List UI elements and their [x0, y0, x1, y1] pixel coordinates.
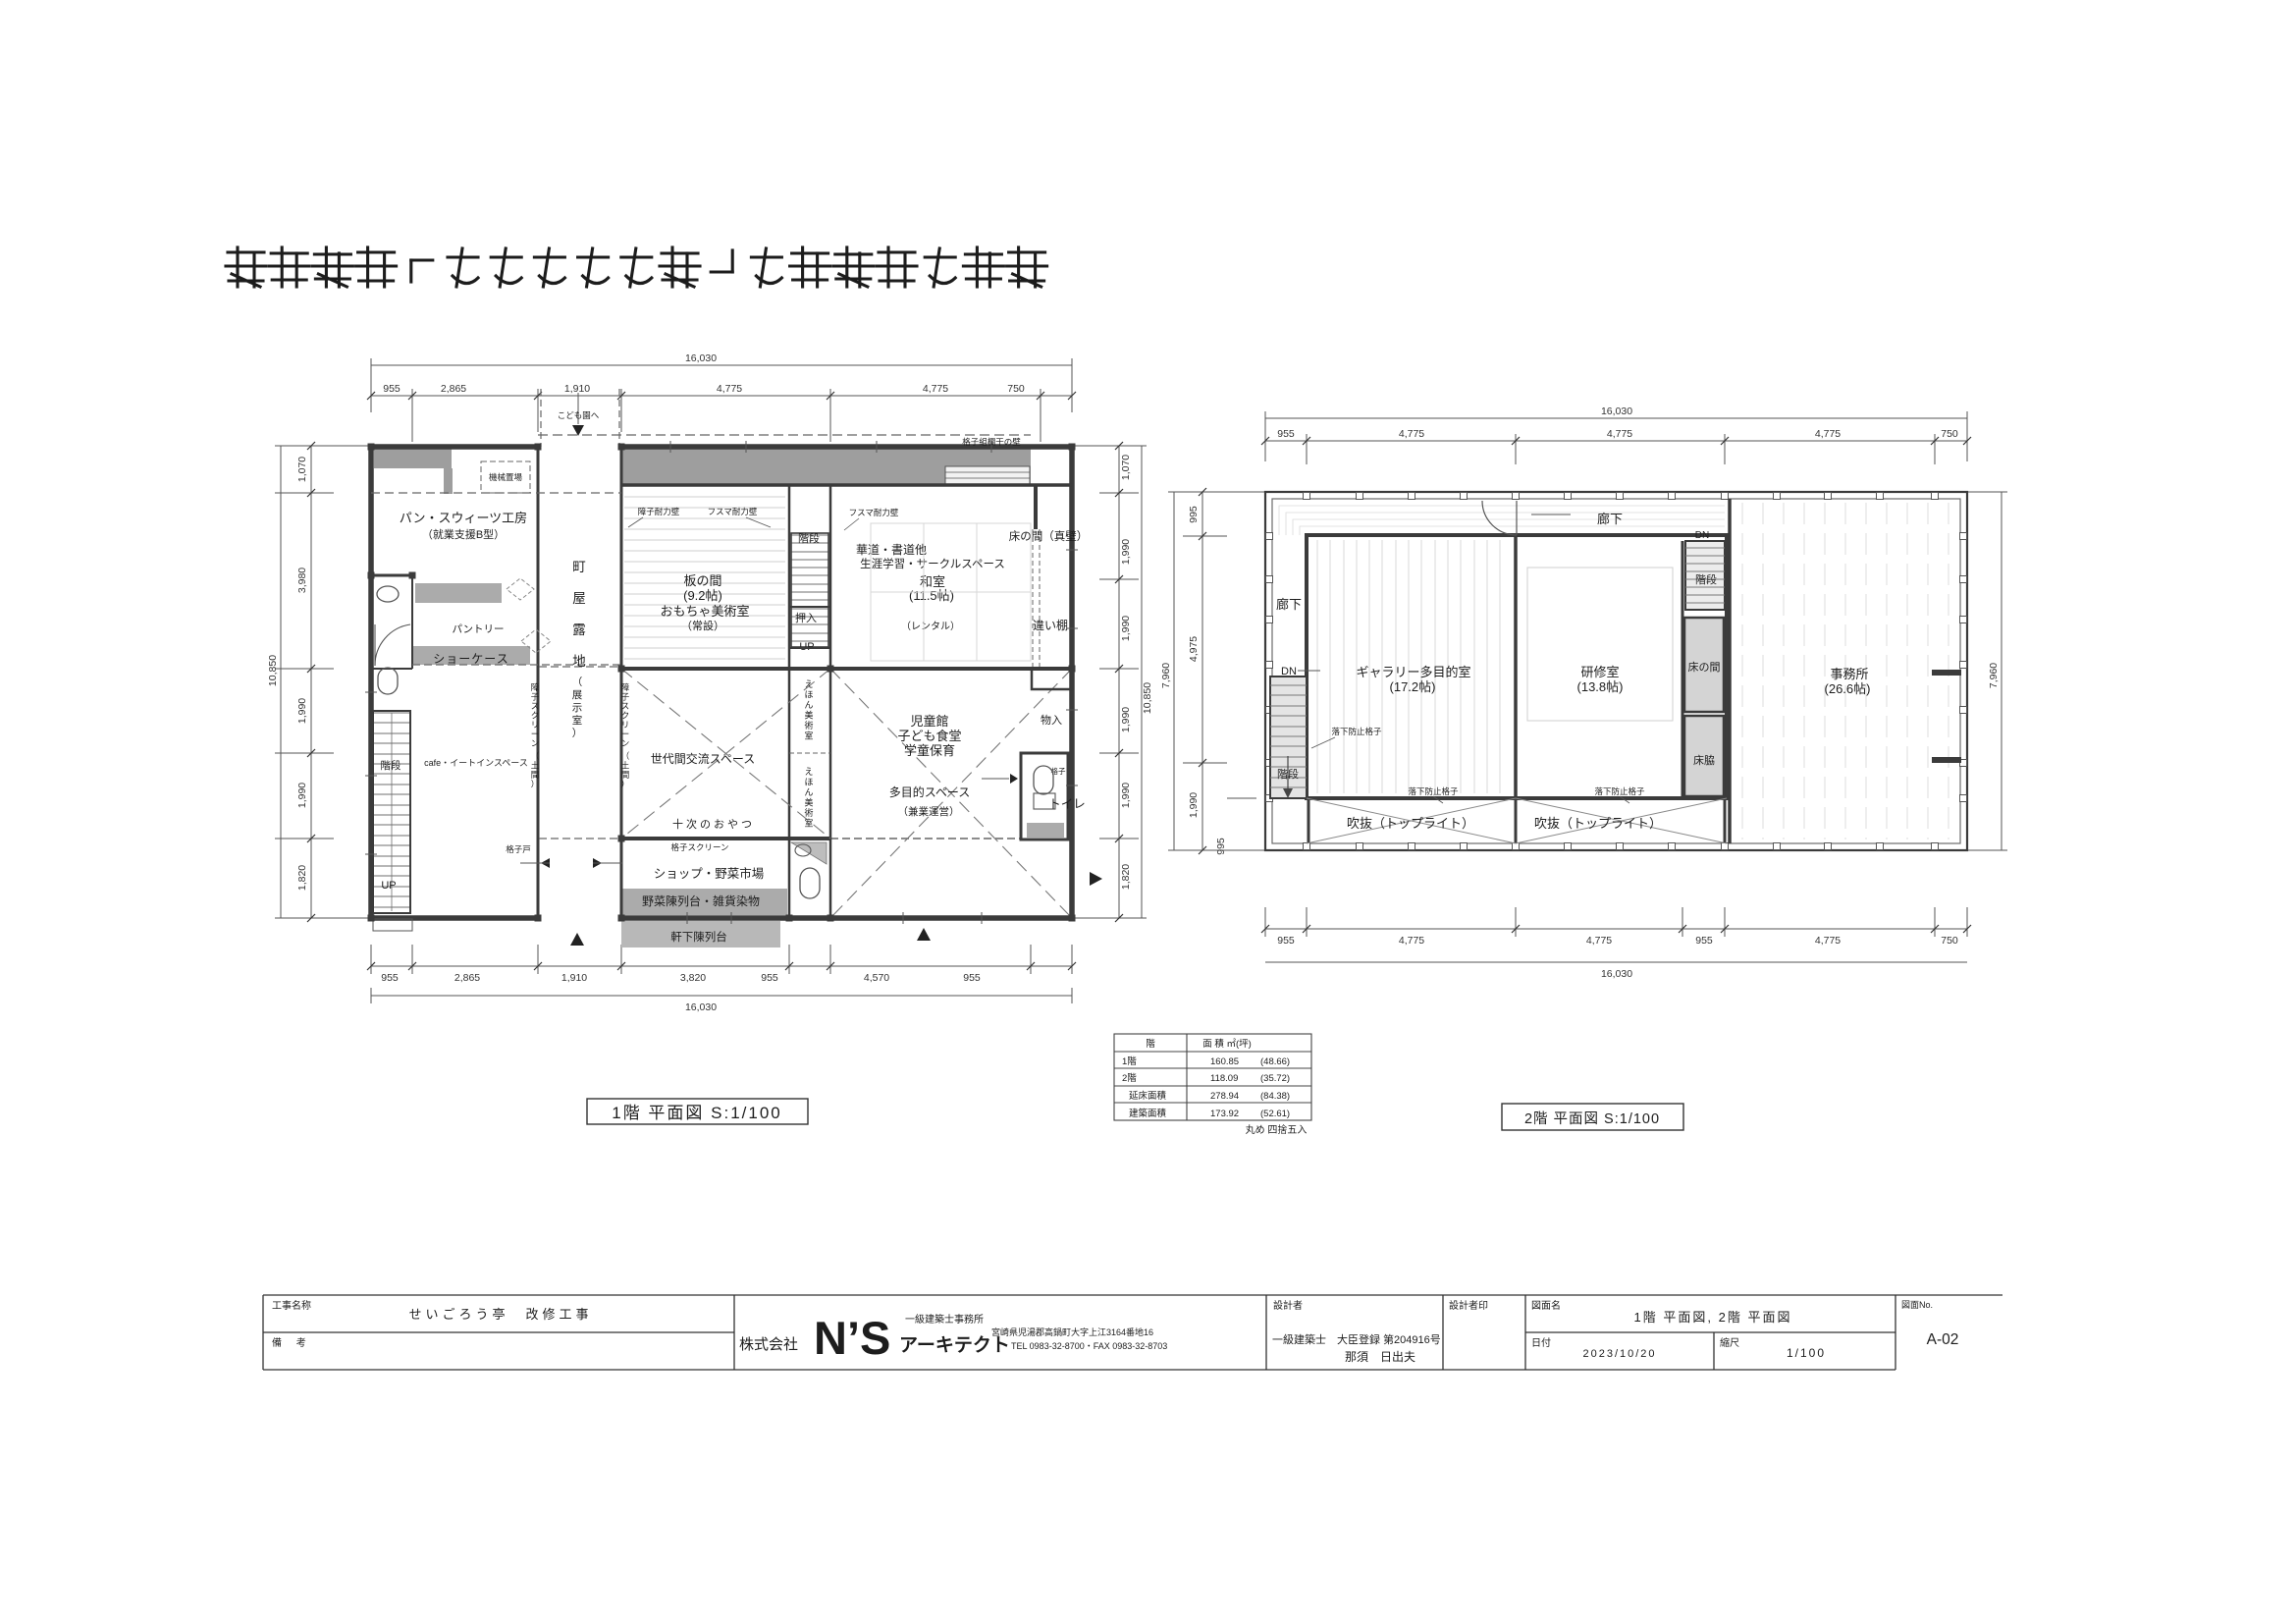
svg-text:UP: UP [381, 880, 396, 892]
svg-text:（常設）: （常設） [681, 619, 724, 632]
svg-text:1,070: 1,070 [1120, 455, 1132, 480]
svg-text:床脇: 床脇 [1693, 753, 1715, 767]
svg-text:日付: 日付 [1531, 1336, 1551, 1349]
svg-text:10,850: 10,850 [267, 655, 279, 686]
svg-text:面 積 ㎡(坪): 面 積 ㎡(坪) [1202, 1038, 1252, 1050]
svg-text:(35.72): (35.72) [1260, 1073, 1290, 1084]
svg-text:2,865: 2,865 [454, 972, 480, 984]
svg-text:物入: 物入 [1041, 713, 1062, 727]
svg-text:縮尺: 縮尺 [1720, 1336, 1739, 1349]
svg-text:1,990: 1,990 [296, 783, 308, 808]
svg-text:那須 日出夫: 那須 日出夫 [1345, 1350, 1415, 1364]
svg-text:1,990: 1,990 [1120, 539, 1132, 565]
svg-text:4,775: 4,775 [1399, 428, 1424, 440]
svg-text:3,980: 3,980 [296, 568, 308, 593]
svg-text:16,030: 16,030 [685, 1001, 717, 1013]
svg-text:1,990: 1,990 [1188, 792, 1200, 818]
svg-text:TEL 0983-32-8700・FAX 0983-32-8: TEL 0983-32-8700・FAX 0983-32-8703 [1011, 1341, 1167, 1351]
svg-text:機械置場: 機械置場 [489, 472, 523, 482]
svg-text:宮崎県児湯郡高鍋町大字上江3164番地16: 宮崎県児湯郡高鍋町大字上江3164番地16 [991, 1326, 1153, 1337]
svg-text:華道・書道他: 華道・書道他 [856, 543, 927, 557]
svg-text:学童保育: 学童保育 [904, 743, 955, 758]
svg-text:1,910: 1,910 [561, 972, 587, 984]
svg-text:(13.8帖): (13.8帖) [1577, 679, 1624, 694]
svg-text:4,775: 4,775 [1399, 935, 1424, 947]
svg-text:図面名: 図面名 [1531, 1299, 1561, 1312]
svg-text:ギャラリー多目的室: ギャラリー多目的室 [1356, 665, 1470, 679]
svg-text:障子スクリーン: 障子スクリーン [621, 682, 630, 748]
svg-text:備 考: 備 考 [272, 1336, 312, 1349]
svg-text:2,865: 2,865 [441, 383, 466, 395]
svg-text:一級建築士事務所: 一級建築士事務所 [905, 1313, 984, 1326]
svg-text:(17.2帖): (17.2帖) [1390, 679, 1436, 694]
svg-text:延床面積: 延床面積 [1129, 1090, 1167, 1102]
svg-text:118.09: 118.09 [1210, 1073, 1238, 1084]
svg-text:N’S: N’S [814, 1312, 890, 1364]
svg-text:フスマ耐力壁: フスマ耐力壁 [849, 508, 899, 517]
svg-text:違い棚: 違い棚 [1033, 618, 1068, 632]
svg-text:野菜陳列台・雑貨染物: 野菜陳列台・雑貨染物 [642, 893, 760, 908]
svg-text:4,775: 4,775 [923, 383, 948, 395]
svg-text:1,070: 1,070 [296, 457, 308, 482]
svg-text:2階: 2階 [1122, 1073, 1137, 1084]
svg-text:7,960: 7,960 [1160, 663, 1172, 688]
svg-text:1,990: 1,990 [296, 698, 308, 724]
svg-text:えほん美術室: えほん美術室 [804, 679, 813, 741]
svg-text:1階 平面図, 2階 平面図: 1階 平面図, 2階 平面図 [1634, 1310, 1792, 1325]
svg-text:フスマ耐力壁: フスマ耐力壁 [708, 507, 758, 516]
svg-text:子ども食堂: 子ども食堂 [897, 729, 961, 743]
svg-text:（レンタル）: （レンタル） [901, 621, 960, 632]
svg-text:えほん美術室: えほん美術室 [804, 767, 813, 829]
svg-text:1階 平面図 S:1/100: 1階 平面図 S:1/100 [612, 1104, 782, 1122]
svg-text:10,850: 10,850 [1142, 682, 1153, 714]
svg-text:955: 955 [1277, 935, 1295, 947]
svg-text:1,910: 1,910 [564, 383, 590, 395]
svg-text:1,820: 1,820 [296, 865, 308, 891]
svg-text:板の間: 板の間 [683, 573, 721, 588]
svg-text:4,775: 4,775 [717, 383, 742, 395]
svg-text:吹抜（トップライト）: 吹抜（トップライト） [1347, 816, 1474, 831]
svg-text:（就業支援B型）: （就業支援B型） [422, 527, 505, 541]
svg-text:障子スクリーン: 障子スクリーン [531, 682, 540, 748]
svg-text:(26.6帖): (26.6帖) [1825, 681, 1871, 696]
svg-text:278.94: 278.94 [1210, 1091, 1239, 1102]
svg-text:(52.61): (52.61) [1260, 1109, 1290, 1119]
svg-text:落下防止格子: 落下防止格子 [1331, 727, 1382, 736]
svg-text:床の間: 床の間 [1688, 660, 1721, 674]
svg-text:（展示室）: （展示室） [572, 677, 583, 739]
svg-text:750: 750 [1007, 383, 1025, 395]
svg-text:173.92: 173.92 [1210, 1109, 1239, 1119]
svg-text:955: 955 [381, 972, 399, 984]
svg-text:格子スクリーン: 格子スクリーン [670, 842, 728, 852]
svg-text:設計者印: 設計者印 [1449, 1299, 1488, 1312]
svg-text:4,775: 4,775 [1586, 935, 1612, 947]
svg-text:障子耐力壁: 障子耐力壁 [638, 507, 680, 516]
svg-text:工事名称: 工事名称 [272, 1299, 311, 1312]
svg-text:1,820: 1,820 [1120, 864, 1132, 890]
svg-text:研修室: 研修室 [1580, 665, 1619, 679]
svg-text:建築面積: 建築面積 [1129, 1108, 1167, 1119]
svg-text:落下防止格子: 落下防止格子 [1594, 786, 1645, 796]
svg-text:995: 995 [1215, 838, 1227, 855]
svg-text:DN: DN [1695, 530, 1709, 541]
svg-text:955: 955 [383, 383, 400, 395]
svg-text:せいごろう亭 改修工事: せいごろう亭 改修工事 [408, 1307, 592, 1322]
svg-text:階段: 階段 [1695, 572, 1717, 586]
svg-text:160.85: 160.85 [1210, 1056, 1239, 1067]
svg-text:1,990: 1,990 [1120, 616, 1132, 641]
svg-text:DN: DN [1281, 666, 1297, 677]
svg-text:格子戸: 格子戸 [506, 844, 531, 854]
svg-text:750: 750 [1941, 428, 1958, 440]
svg-text:1,990: 1,990 [1120, 783, 1132, 808]
svg-text:16,030: 16,030 [1601, 968, 1632, 980]
svg-text:世代間交流スペース: 世代間交流スペース [651, 751, 756, 766]
svg-text:4,775: 4,775 [1815, 428, 1841, 440]
svg-text:ショップ・野菜市場: ショップ・野菜市場 [654, 866, 765, 881]
svg-text:ショーケース: ショーケース [433, 652, 508, 666]
svg-text:パントリー: パントリー [452, 623, 504, 635]
svg-text:押入: 押入 [795, 611, 817, 624]
svg-text:落下防止格子: 落下防止格子 [1408, 786, 1459, 796]
svg-text:廊下: 廊下 [1597, 512, 1623, 526]
svg-text:(9.2帖): (9.2帖) [683, 588, 722, 603]
svg-text:生涯学習・サークルスペース: 生涯学習・サークルスペース [860, 557, 1005, 570]
svg-text:十次のおやつ: 十次のおやつ [672, 817, 755, 831]
svg-text:株式会社: 株式会社 [739, 1336, 798, 1353]
svg-text:955: 955 [1695, 935, 1713, 947]
svg-text:階段: 階段 [798, 531, 820, 545]
svg-text:事務所: 事務所 [1830, 667, 1868, 681]
svg-text:廊下: 廊下 [1276, 597, 1302, 612]
svg-text:トイレ: トイレ [1048, 797, 1086, 811]
svg-text:955: 955 [963, 972, 981, 984]
svg-text:軒下陳列台: 軒下陳列台 [670, 930, 727, 944]
svg-text:児童館: 児童館 [910, 714, 948, 729]
svg-text:16,030: 16,030 [1601, 406, 1632, 417]
svg-text:1,990: 1,990 [1120, 707, 1132, 732]
svg-text:995: 995 [1188, 506, 1200, 523]
svg-text:床の間（真壁）: 床の間（真壁） [1009, 529, 1089, 543]
svg-text:7,960: 7,960 [1988, 663, 2000, 688]
svg-text:(84.38): (84.38) [1260, 1091, 1290, 1102]
svg-text:丸め 四捨五入: 丸め 四捨五入 [1246, 1123, 1308, 1136]
svg-text:4,775: 4,775 [1815, 935, 1841, 947]
svg-text:（土間）: （土間） [621, 751, 630, 789]
svg-text:（土間）: （土間） [531, 751, 540, 789]
svg-text:一級建築士 大臣登録 第204916号: 一級建築士 大臣登録 第204916号 [1272, 1332, 1441, 1346]
svg-text:4,975: 4,975 [1188, 636, 1200, 662]
svg-text:図面No.: 図面No. [1901, 1300, 1933, 1310]
svg-text:3,820: 3,820 [680, 972, 706, 984]
svg-text:A-02: A-02 [1927, 1331, 1959, 1348]
svg-text:階段: 階段 [1277, 767, 1299, 781]
svg-text:(11.5帖): (11.5帖) [909, 588, 954, 603]
svg-text:多目的スペース: 多目的スペース [889, 785, 971, 799]
svg-text:1階: 1階 [1122, 1056, 1137, 1067]
svg-text:4,570: 4,570 [864, 972, 889, 984]
svg-text:4,775: 4,775 [1607, 428, 1632, 440]
svg-text:955: 955 [1277, 428, 1295, 440]
svg-text:設計者: 設計者 [1273, 1299, 1303, 1312]
svg-text:パン・スウィーツ工房: パン・スウィーツ工房 [400, 511, 527, 525]
svg-text:こども園へ: こども園へ [558, 410, 600, 420]
svg-text:吹抜（トップライト）: 吹抜（トップライト） [1534, 816, 1662, 831]
svg-text:750: 750 [1941, 935, 1958, 947]
svg-text:おもちゃ美術室: おもちゃ美術室 [660, 604, 749, 619]
svg-text:2階 平面図 S:1/100: 2階 平面図 S:1/100 [1524, 1110, 1660, 1127]
svg-text:階: 階 [1146, 1039, 1155, 1050]
svg-text:16,030: 16,030 [685, 352, 717, 364]
svg-text:cafe・イートインスペース: cafe・イートインスペース [424, 758, 528, 768]
svg-text:2023/10/20: 2023/10/20 [1582, 1348, 1656, 1360]
svg-text:格子組欄干の壁: 格子組欄干の壁 [962, 437, 1021, 447]
svg-text:（兼業運営）: （兼業運営） [898, 805, 960, 818]
svg-text:階段: 階段 [381, 759, 401, 772]
svg-text:1/100: 1/100 [1787, 1346, 1826, 1360]
svg-text:アーキテクト: アーキテクト [899, 1334, 1010, 1356]
svg-text:955: 955 [761, 972, 778, 984]
svg-text:(48.66): (48.66) [1260, 1056, 1290, 1067]
